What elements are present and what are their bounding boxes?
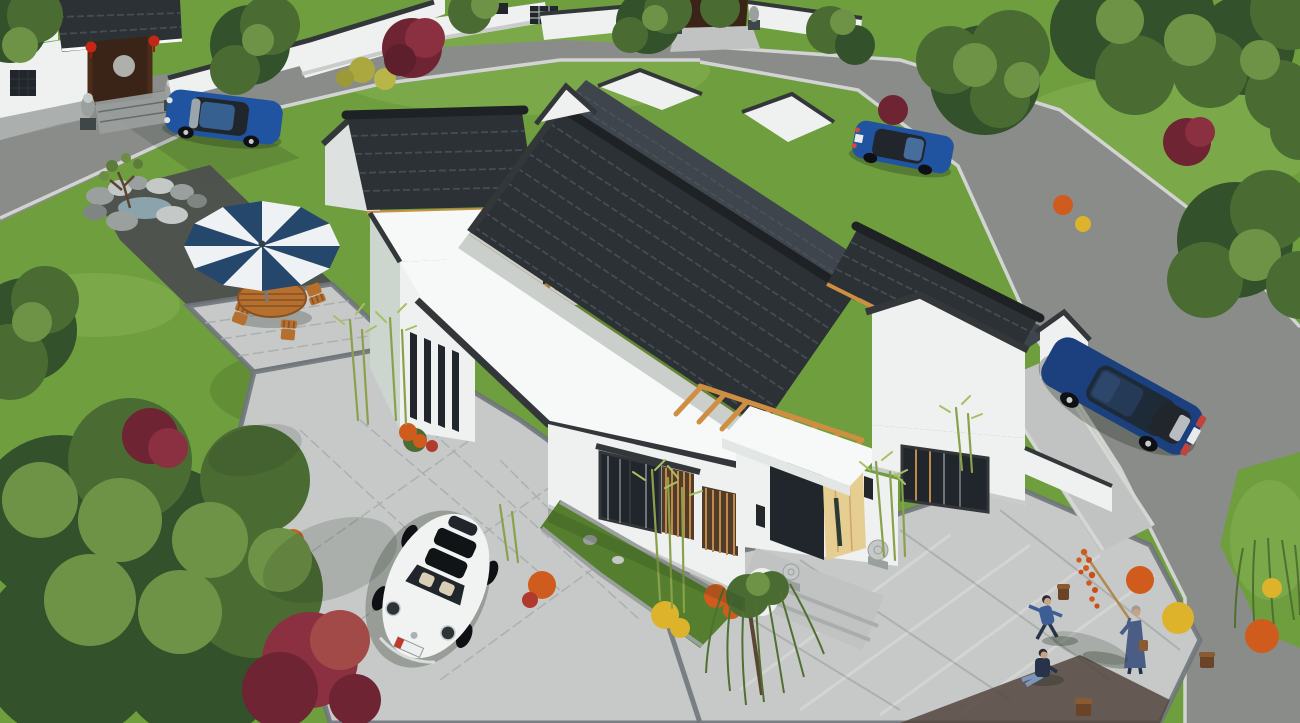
right-window [902,446,988,512]
louver-window [702,486,738,556]
satchel [1139,640,1148,651]
aerial-render [0,0,1300,723]
patio-chair [280,319,298,340]
rendered-scene [0,0,1300,723]
